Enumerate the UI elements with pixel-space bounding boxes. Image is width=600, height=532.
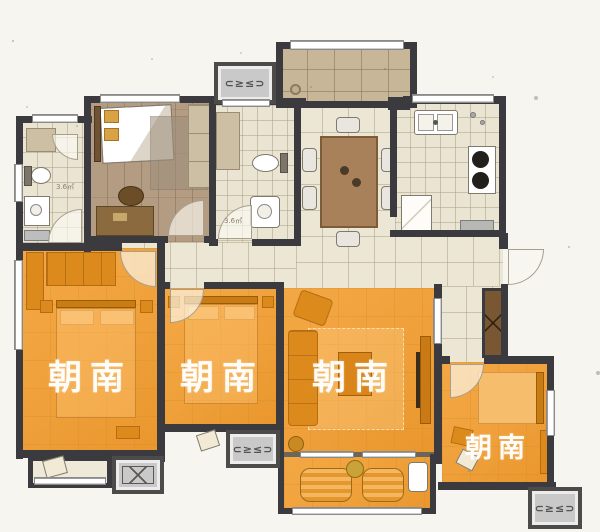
plant	[346, 460, 364, 478]
orientation-label-bedroom-2: 朝南	[160, 350, 284, 399]
duct-shaft	[482, 288, 504, 358]
bed-headboard	[94, 106, 101, 162]
tv	[416, 352, 420, 408]
dining-table	[320, 136, 378, 228]
laptop	[112, 212, 128, 222]
window	[290, 40, 404, 50]
basin	[30, 204, 42, 216]
floor-plan: ⊂≥≤⊃ ⊂≥≤⊃ ⊂≥≤⊃ 朝南 朝南 朝南 朝南 3.6㎡ 3.6㎡	[0, 0, 600, 532]
wall	[390, 103, 397, 217]
faucet	[433, 120, 438, 125]
area-label-bathroom-2: 3.6㎡	[224, 216, 242, 226]
toilet	[31, 167, 51, 184]
wall	[276, 44, 283, 108]
bed-headboard	[56, 300, 136, 308]
window	[100, 94, 180, 103]
chair	[196, 429, 220, 451]
dining-chair	[302, 186, 317, 210]
ac-mark: ⊂≥≤⊃	[535, 503, 576, 514]
area-label-bathroom-1: 3.6㎡	[56, 182, 74, 192]
wall	[209, 96, 216, 246]
wall	[16, 243, 122, 251]
sliding-door-glass	[362, 451, 416, 458]
wall	[204, 282, 284, 289]
basin	[257, 204, 272, 219]
window	[292, 507, 422, 515]
dining-chair	[336, 117, 360, 133]
ac-mark: ⊂≥≤⊃	[225, 78, 266, 89]
dining-chair	[302, 148, 317, 172]
window	[14, 260, 23, 350]
ac-platform-bottom-right: ⊂≥≤⊃	[528, 487, 582, 529]
wardrobe	[188, 104, 210, 188]
plant	[288, 436, 304, 452]
ac-platform-top: ⊂≥≤⊃	[214, 62, 276, 104]
terrace-drain	[290, 84, 301, 95]
lounge-chair	[362, 468, 404, 502]
wall	[294, 103, 301, 246]
wall	[209, 239, 218, 246]
burner	[472, 172, 489, 189]
wall	[430, 454, 436, 514]
table-setting	[352, 178, 361, 187]
wall	[501, 233, 508, 249]
x-hatch-icon	[122, 466, 154, 483]
wall	[390, 230, 506, 237]
kitchen-accessory	[470, 112, 476, 118]
window	[433, 298, 442, 344]
wall	[499, 96, 506, 249]
wall	[84, 236, 168, 243]
pillow	[104, 128, 119, 141]
kitchen-accessory	[480, 120, 485, 125]
toilet	[252, 154, 279, 172]
window	[34, 477, 106, 485]
sink-basin	[437, 114, 453, 131]
floor-mat	[24, 230, 50, 241]
wall	[84, 96, 91, 252]
balcony-sink	[408, 462, 428, 492]
paper-speckles	[12, 40, 14, 42]
bathroom-counter	[216, 112, 240, 170]
window	[222, 99, 270, 107]
wall	[157, 282, 170, 289]
desk-chair	[118, 186, 144, 206]
orientation-label-bedroom-1: 朝南	[28, 350, 152, 399]
nightstand	[262, 296, 274, 308]
pillow	[104, 110, 119, 123]
burner	[472, 151, 489, 168]
bench	[116, 426, 140, 439]
bathroom-cabinet	[26, 128, 56, 152]
ac-mark: ⊂≥≤⊃	[233, 444, 274, 455]
ac-platform-bottom-left	[112, 456, 164, 494]
wall	[252, 239, 301, 246]
bed-headboard	[536, 372, 544, 424]
fridge	[401, 195, 432, 233]
sink-basin	[418, 114, 434, 131]
table-setting	[340, 166, 349, 175]
dining-chair	[336, 231, 360, 247]
orientation-label-bedroom-3: 朝南	[444, 426, 552, 465]
lounge-chair	[300, 468, 352, 502]
window	[32, 114, 78, 123]
door-arc-entry	[508, 249, 544, 285]
ac-platform-bedroom-2: ⊂≥≤⊃	[226, 430, 280, 468]
window	[14, 164, 23, 202]
tv-cabinet	[420, 336, 431, 424]
nightstand	[140, 300, 153, 313]
corridor-floor	[395, 236, 503, 288]
orientation-label-living-room: 朝南	[292, 350, 416, 399]
bed	[478, 372, 542, 424]
sliding-door-glass	[300, 451, 354, 458]
wardrobe	[46, 252, 116, 286]
nightstand	[40, 300, 53, 313]
window	[412, 94, 494, 103]
toilet-tank	[280, 153, 288, 173]
wall	[438, 356, 450, 364]
toilet-tank	[24, 166, 32, 186]
